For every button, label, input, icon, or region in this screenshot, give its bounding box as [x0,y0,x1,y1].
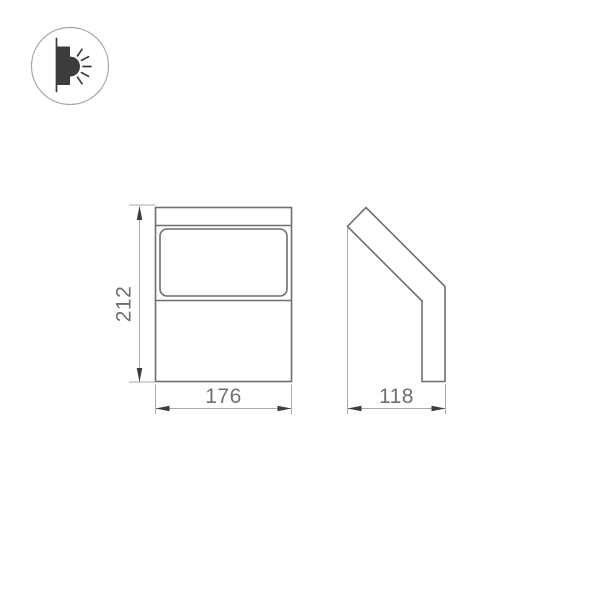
drawing-canvas: 212 176 118 [0,0,600,600]
width-dimension-label: 176 [205,385,242,408]
arrow-left-icon [156,406,170,412]
depth-dimension-label: 118 [379,385,414,408]
arrow-up-icon [137,206,143,220]
dimension-labels: 212 176 118 [113,286,414,408]
arrow-right-icon [278,406,292,412]
front-lens-panel [160,229,287,296]
front-body-outline [156,208,292,382]
side-profile-outline [348,208,446,382]
luminaire-dimension-drawing: 212 176 118 [0,0,600,600]
arrow-right-icon [432,406,446,412]
object-outlines [156,208,446,382]
fixture-body-icon [57,47,70,86]
arrow-down-icon [137,368,143,382]
arrow-left-icon [348,406,362,412]
side-view [348,208,446,382]
height-dimension-label: 212 [113,286,136,323]
wall-light-icon [32,28,109,105]
front-view [156,208,292,382]
